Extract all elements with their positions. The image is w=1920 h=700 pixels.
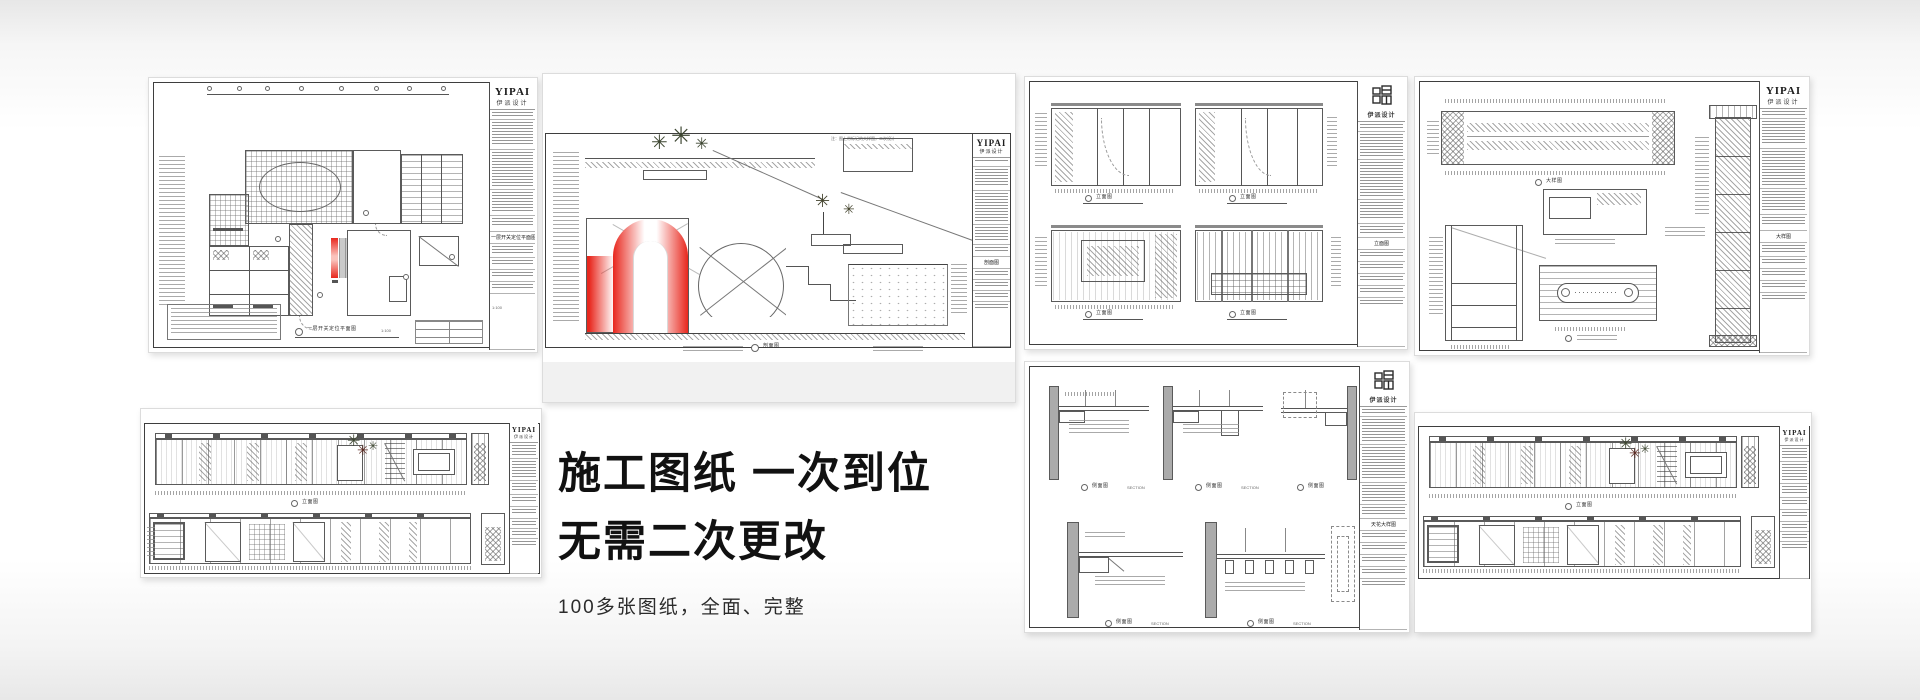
- side-hatch-panel: [1155, 234, 1177, 298]
- column-marker: [309, 434, 316, 438]
- ceiling-line: [1217, 558, 1325, 559]
- seal-logo-icon: [1374, 370, 1394, 390]
- title-mark: [1247, 620, 1254, 627]
- grid-screen: [249, 524, 285, 560]
- company-line: [1760, 109, 1807, 119]
- shelf-line: [1451, 327, 1517, 328]
- lower-band: [1211, 273, 1307, 295]
- red-accent-strip: [331, 238, 338, 278]
- hanger-rod: [1305, 390, 1306, 408]
- elev-label: 立面图: [1096, 194, 1113, 201]
- plant-scribble: ✳: [695, 138, 708, 152]
- scale-field: [973, 302, 1010, 347]
- company-line: [1360, 407, 1407, 417]
- dim-row: [1055, 305, 1175, 309]
- title-mark: [1195, 484, 1202, 491]
- column-top-cap: [1709, 105, 1757, 119]
- notes-block: [490, 150, 535, 190]
- section-title: 剖面图: [763, 343, 780, 350]
- palm-scribble: ✳: [843, 202, 855, 216]
- symbol-target: [317, 292, 323, 298]
- project-field: [510, 495, 538, 507]
- column-marker: [1691, 517, 1698, 520]
- inner-step: [1549, 197, 1591, 219]
- column-marker: [1587, 517, 1594, 520]
- yipai-logo: YIPAI 伊派设计: [973, 134, 1010, 158]
- scale-field: 1:100: [490, 294, 535, 350]
- hatch-panel: [1473, 446, 1485, 484]
- column-marker: [365, 514, 372, 517]
- title-mark: [1081, 484, 1088, 491]
- fixture-hatch: [253, 250, 269, 260]
- title-block: YIPAI 伊派设计: [1779, 426, 1809, 579]
- elev-label: 立面图: [1096, 310, 1113, 317]
- notes-block: [973, 191, 1010, 225]
- title-mark: [1105, 620, 1112, 627]
- notes-block: [1360, 445, 1407, 483]
- batten-section: [1245, 560, 1254, 574]
- hanger-rod: [1245, 528, 1246, 552]
- elevation-title: 立面图: [302, 499, 319, 506]
- title-field: [510, 507, 538, 519]
- sheet-title-field: 剖面图: [973, 257, 1010, 269]
- client-field: [973, 245, 1010, 257]
- column-marker: [1487, 437, 1494, 441]
- column-marker: [449, 434, 456, 438]
- plant-scribble: ✳: [671, 130, 691, 144]
- arch-opening: [633, 241, 668, 333]
- sphere-detail: [698, 243, 786, 317]
- sheet-floor-plan: 一层开关定位平面图 1:100 YIPAI 伊派设计 一层开关定位平面图 1:1…: [148, 77, 538, 353]
- grid-bubble: [407, 86, 412, 91]
- batten-section: [1265, 560, 1274, 574]
- artwork-inner: [1690, 456, 1722, 474]
- date-field: [1760, 257, 1807, 269]
- brand-name-cn: 伊派设计: [1360, 395, 1407, 404]
- grid-screen: [1523, 527, 1559, 563]
- brand-name-cn: 伊派设计: [1358, 110, 1405, 119]
- title-block: YIPAI 伊派设计 一层开关定位平面图 1:100: [489, 82, 535, 350]
- column-marker: [261, 514, 268, 517]
- dim-row: [1445, 171, 1665, 175]
- column-marker: [405, 434, 412, 438]
- dim-text-column: [1327, 117, 1337, 167]
- hero-text-block: 施工图纸 一次到位 无需二次更改 100多张图纸，全面、完整: [558, 448, 932, 619]
- end-circle: [1561, 288, 1570, 297]
- stair-panel: [1427, 525, 1459, 563]
- elev-top-bar: [1195, 225, 1323, 228]
- brand-name-cn: 伊派设计: [1760, 97, 1807, 106]
- stage-field: [1360, 531, 1407, 543]
- left-room: [209, 194, 249, 246]
- planter-box: [643, 170, 707, 180]
- leader-text: [1069, 420, 1129, 434]
- dotted-center: [1575, 292, 1619, 293]
- client-field: [490, 216, 535, 232]
- date-field: [1780, 522, 1809, 532]
- hatch-panel: [1569, 446, 1581, 484]
- corridor-hatch: [289, 224, 313, 316]
- drawn-by-field: [1780, 532, 1809, 542]
- partition-line: [209, 270, 289, 271]
- drawn-by-field: [973, 291, 1010, 302]
- yipai-logo: YIPAI 伊派设计: [1760, 81, 1807, 109]
- column-marker: [417, 514, 424, 517]
- elev-top-bar: [1051, 103, 1181, 106]
- title-mark: [1565, 503, 1572, 510]
- client-field: [1358, 224, 1405, 238]
- title-block: YIPAI 伊派设计 剖面图: [972, 134, 1010, 347]
- checked-by-field: [1360, 567, 1407, 579]
- column-marker: [1483, 517, 1490, 520]
- sheet-title-field: 大样图: [1760, 231, 1807, 243]
- poster-canvas: 一层开关定位平面图 1:100 YIPAI 伊派设计 一层开关定位平面图 1:1…: [0, 0, 1920, 700]
- pool-water: [848, 264, 948, 326]
- grid-dim-line: [207, 94, 449, 95]
- title-block: 伊派设计 立面图: [1357, 81, 1405, 347]
- contact-block: [1780, 446, 1809, 462]
- scale-field: [510, 539, 538, 574]
- dim-text-column: [1035, 237, 1047, 287]
- hero-title-line-1: 施工图纸 一次到位: [558, 448, 932, 500]
- notes-block: [1358, 160, 1405, 200]
- title-mark: [1229, 195, 1236, 202]
- panel-line: [1149, 108, 1150, 186]
- wall-line: [441, 154, 442, 224]
- hanger-rod: [1115, 390, 1116, 406]
- soffit-step: [1325, 412, 1347, 426]
- fixture-hatch: [213, 250, 229, 260]
- elev-label: 立面图: [1240, 194, 1257, 201]
- dim-row: [1429, 494, 1737, 498]
- title-mark: [1297, 484, 1304, 491]
- artwork-inner: [418, 453, 450, 471]
- end-column-hatch: [474, 443, 486, 481]
- hatch-column: [379, 522, 389, 562]
- grid-bubble: [339, 86, 344, 91]
- dim-row: [1065, 392, 1115, 396]
- symbol-target: [449, 254, 455, 260]
- hatch-column: [1615, 525, 1625, 565]
- hatch-panel: [1055, 112, 1073, 182]
- grid-bubble: [207, 86, 212, 91]
- yipai-logo: YIPAI 伊派设计: [490, 82, 535, 110]
- leader-text: [1085, 532, 1125, 540]
- client-field: [1780, 484, 1809, 498]
- dim-text-column: [1429, 237, 1443, 317]
- dim-row: [1445, 99, 1665, 103]
- wall-bar: [1205, 522, 1217, 618]
- column-marker: [1583, 437, 1590, 441]
- dim-text-column: [159, 156, 185, 306]
- brand-name-cn: 伊派设计: [1780, 437, 1809, 443]
- yipai-square-logo: 伊派设计: [1360, 366, 1407, 407]
- scale-field: [1780, 542, 1809, 579]
- hatch-panel: [295, 443, 307, 481]
- project-no-field: [490, 244, 535, 258]
- contact-block: [1358, 132, 1405, 160]
- shelf-line: [1451, 283, 1517, 284]
- center-line: [1467, 136, 1649, 137]
- batten-section: [1225, 560, 1234, 574]
- column-marker: [261, 434, 268, 438]
- hatch-column: [409, 522, 417, 562]
- hatch-panel: [247, 443, 259, 481]
- column-marker: [157, 514, 164, 517]
- plan-title: 一层开关定位平面图: [307, 326, 357, 333]
- title-field: [1780, 510, 1809, 522]
- column-marker: [209, 514, 216, 517]
- plant-scribble: ✳: [368, 439, 378, 453]
- notes-cn-block: [1360, 483, 1407, 505]
- step-line: [808, 284, 830, 285]
- column-marker: [1535, 517, 1542, 520]
- grid-bubble: [237, 86, 242, 91]
- title-mark: [1085, 195, 1092, 202]
- ceiling-line: [585, 158, 815, 159]
- cove-detail: [1079, 557, 1109, 573]
- end-cap-hatch: [1442, 112, 1464, 164]
- dim-row: [1423, 569, 1741, 573]
- section-label-en: SECTION: [1127, 485, 1145, 490]
- brand-name-cn: 伊派设计: [490, 98, 535, 107]
- brand-name-cn: 伊派设计: [510, 434, 538, 440]
- elev-top-bar: [1051, 225, 1181, 228]
- contact-block: [1360, 417, 1407, 445]
- label-underline: [1083, 319, 1143, 320]
- drawn-by-field: [490, 270, 535, 282]
- palm-scribble: ✳: [815, 194, 830, 208]
- ceiling-hatch: [585, 162, 815, 168]
- sheet-title-field: 立面图: [1358, 238, 1405, 250]
- drawn-by-field: [510, 529, 538, 539]
- hero-subtitle: 100多张图纸，全面、完整: [558, 592, 932, 619]
- yipai-logo: YIPAI 伊派设计: [510, 423, 538, 443]
- grid-bubble: [265, 86, 270, 91]
- section-label: 侧面图: [1206, 483, 1223, 490]
- seal-logo-icon: [1372, 85, 1392, 105]
- cabinet-block: [213, 228, 243, 231]
- symbol-target: [275, 236, 281, 242]
- drawn-by-field: [1358, 274, 1405, 286]
- column-marker: [165, 434, 172, 438]
- planter-box: [843, 244, 903, 254]
- checked-by-field: [1358, 286, 1405, 298]
- wall-bar: [1067, 522, 1079, 618]
- dim-text: [1555, 239, 1615, 244]
- grid-bubble: [441, 86, 446, 91]
- title-mark: [1229, 311, 1236, 318]
- column-marker: [1535, 437, 1542, 441]
- contact-block: [510, 443, 538, 459]
- company-line: [490, 110, 535, 120]
- dim-row: [1555, 327, 1625, 331]
- section-label-en: SECTION: [1293, 621, 1311, 626]
- ceiling-line: [1059, 406, 1149, 407]
- right-wing-room: [401, 154, 463, 224]
- hatch-column: [1653, 525, 1663, 565]
- dim-text-column: [1035, 113, 1047, 169]
- column-marker: [1439, 437, 1446, 441]
- shelf-line: [1451, 305, 1517, 306]
- hanger-rod: [1285, 528, 1286, 552]
- brand-name-en: YIPAI: [1760, 85, 1807, 97]
- strip-base: [332, 280, 338, 283]
- hanger-rod: [1199, 390, 1200, 406]
- title-underline: [295, 337, 399, 338]
- date-field: [1360, 543, 1407, 555]
- paper-lower-margin: [543, 362, 1015, 402]
- scale-field: [1360, 579, 1407, 630]
- side-elevation-hatch: [1755, 530, 1771, 564]
- panel-line: [1097, 108, 1098, 186]
- brand-name-en: YIPAI: [510, 426, 538, 434]
- upper-detail-hatch: [843, 144, 913, 149]
- dim-text: [873, 346, 923, 351]
- title-mark: [295, 328, 303, 336]
- sheet-long-elevation-a: ✳ ✳ ✳ 立面图 YIPAI: [140, 408, 542, 578]
- company-line: [1358, 122, 1405, 132]
- dim-text-column: [1331, 237, 1341, 287]
- ceiling-line: [1217, 554, 1325, 555]
- dashed-detail-inner: [1337, 536, 1349, 592]
- ceiling-line: [1173, 406, 1263, 407]
- soffit-step: [1173, 411, 1199, 423]
- symbol-target: [403, 274, 409, 280]
- notes-cn-block: [490, 190, 535, 216]
- column-marker: [1431, 517, 1438, 520]
- leader-text: [1095, 576, 1165, 586]
- revision-table: [415, 320, 483, 344]
- column-marker: [1639, 517, 1646, 520]
- elev-top-bar: [1195, 103, 1323, 106]
- sheet-joinery-details: 大样图 YIPAI 伊派设计: [1414, 76, 1810, 356]
- wall-bar: [1347, 386, 1357, 480]
- section-label: 侧面图: [1092, 483, 1109, 490]
- plant-scribble: ✳: [1629, 446, 1641, 460]
- checked-by-field: [1760, 281, 1807, 293]
- detail-label: 大样图: [1546, 178, 1563, 185]
- panel-line: [1297, 108, 1298, 186]
- dim-row: [149, 566, 471, 570]
- brand-name-en: YIPAI: [490, 86, 535, 98]
- stage-field: [1358, 250, 1405, 262]
- detail-hatch: [1597, 193, 1641, 205]
- red-wall-face: [587, 256, 614, 332]
- dim-row: [1199, 189, 1317, 193]
- notes-cn-block: [1358, 200, 1405, 224]
- section-label: 侧面图: [1308, 483, 1325, 490]
- hatch-panel: [199, 443, 211, 481]
- sheet-arch-section: 注：图上带标记的大样图，二次设计 ✳ ✳ ✳ ✳ ✳: [542, 73, 1016, 403]
- sheet-long-elevation-b: ✳ ✳ ✳ 立面图 YIPAI 伊派设计: [1414, 412, 1812, 633]
- hall-room: [353, 150, 401, 224]
- batten-section: [1305, 560, 1314, 574]
- section-label-en: SECTION: [1151, 621, 1169, 626]
- plant-scribble: ✳: [357, 443, 369, 457]
- label-underline: [1227, 203, 1287, 204]
- notes-block: [1780, 462, 1809, 484]
- leader-text: [1183, 424, 1239, 436]
- leader-text: [1665, 227, 1705, 237]
- hatch-panel: [1521, 446, 1533, 484]
- contact-block: [490, 120, 535, 150]
- date-field: [1358, 262, 1405, 274]
- notes-block: [1760, 149, 1807, 189]
- bottom-right-room: [347, 230, 411, 316]
- hatch-column: [1683, 525, 1691, 565]
- label-underline: [1227, 319, 1287, 320]
- wall-line: [421, 154, 422, 224]
- notes-cn-block: [973, 225, 1010, 245]
- side-elevation-hatch: [485, 527, 501, 561]
- title-block: YIPAI 伊派设计: [509, 423, 538, 574]
- project-no-field: [1760, 243, 1807, 257]
- ghost-outline: [1283, 392, 1317, 418]
- company-line: [973, 158, 1010, 167]
- plant-scribble: ✳: [1640, 442, 1650, 456]
- plan-scale: 1:100: [381, 328, 391, 333]
- notes-block: [510, 459, 538, 481]
- title-mark: [1565, 335, 1572, 342]
- stair-panel: [153, 522, 185, 560]
- ceiling-line: [1079, 552, 1183, 553]
- sheet-wall-elevations: 立面图 立面图 立面图 立面图: [1024, 76, 1408, 350]
- dim-text: [683, 346, 743, 351]
- dim-row: [155, 491, 467, 495]
- long-section-detail: [1441, 111, 1675, 165]
- title-mark: [291, 500, 298, 507]
- client-field: [1760, 215, 1807, 231]
- date-field: [973, 280, 1010, 291]
- scale-field: [1760, 293, 1807, 353]
- dim-row: [1055, 189, 1175, 193]
- dim-text-column: [553, 152, 579, 322]
- board-hatch: [1467, 141, 1649, 150]
- grid-bubble: [374, 86, 379, 91]
- wall-bar: [1049, 386, 1059, 480]
- hero-title-line-2: 无需二次更改: [558, 516, 932, 568]
- wall-bar: [1163, 386, 1173, 480]
- section-label: 侧面图: [1258, 619, 1275, 626]
- board-hatch: [1467, 123, 1649, 132]
- grid-bubble: [299, 86, 304, 91]
- checked-by-field: [490, 282, 535, 294]
- end-cap-hatch: [1652, 112, 1674, 164]
- detail-title-text: [1577, 335, 1617, 340]
- ellipse-feature: [259, 162, 341, 212]
- title-mark: [1085, 311, 1092, 318]
- contact-block: [973, 167, 1010, 191]
- date-field: [510, 519, 538, 529]
- project-field: [1780, 498, 1809, 510]
- step-line: [808, 266, 809, 284]
- sheet-title-field: 一层开关定位平面图: [490, 232, 535, 244]
- feature-hatch: [1087, 246, 1139, 276]
- dim-text-column: [1695, 137, 1709, 217]
- drawn-by-field: [1760, 269, 1807, 281]
- elevation-title: 立面图: [1576, 502, 1593, 509]
- title-block: YIPAI 伊派设计 大样图: [1759, 81, 1807, 353]
- dim-text-column: [1427, 121, 1439, 157]
- section-label-en: SECTION: [1241, 485, 1259, 490]
- panel-line: [1241, 108, 1242, 186]
- notes-cn-block: [1760, 189, 1807, 215]
- brand-name-cn: 伊派设计: [973, 148, 1010, 155]
- column-marker: [1679, 437, 1686, 441]
- yipai-logo: YIPAI 伊派设计: [1780, 426, 1809, 446]
- partition-line: [209, 294, 289, 295]
